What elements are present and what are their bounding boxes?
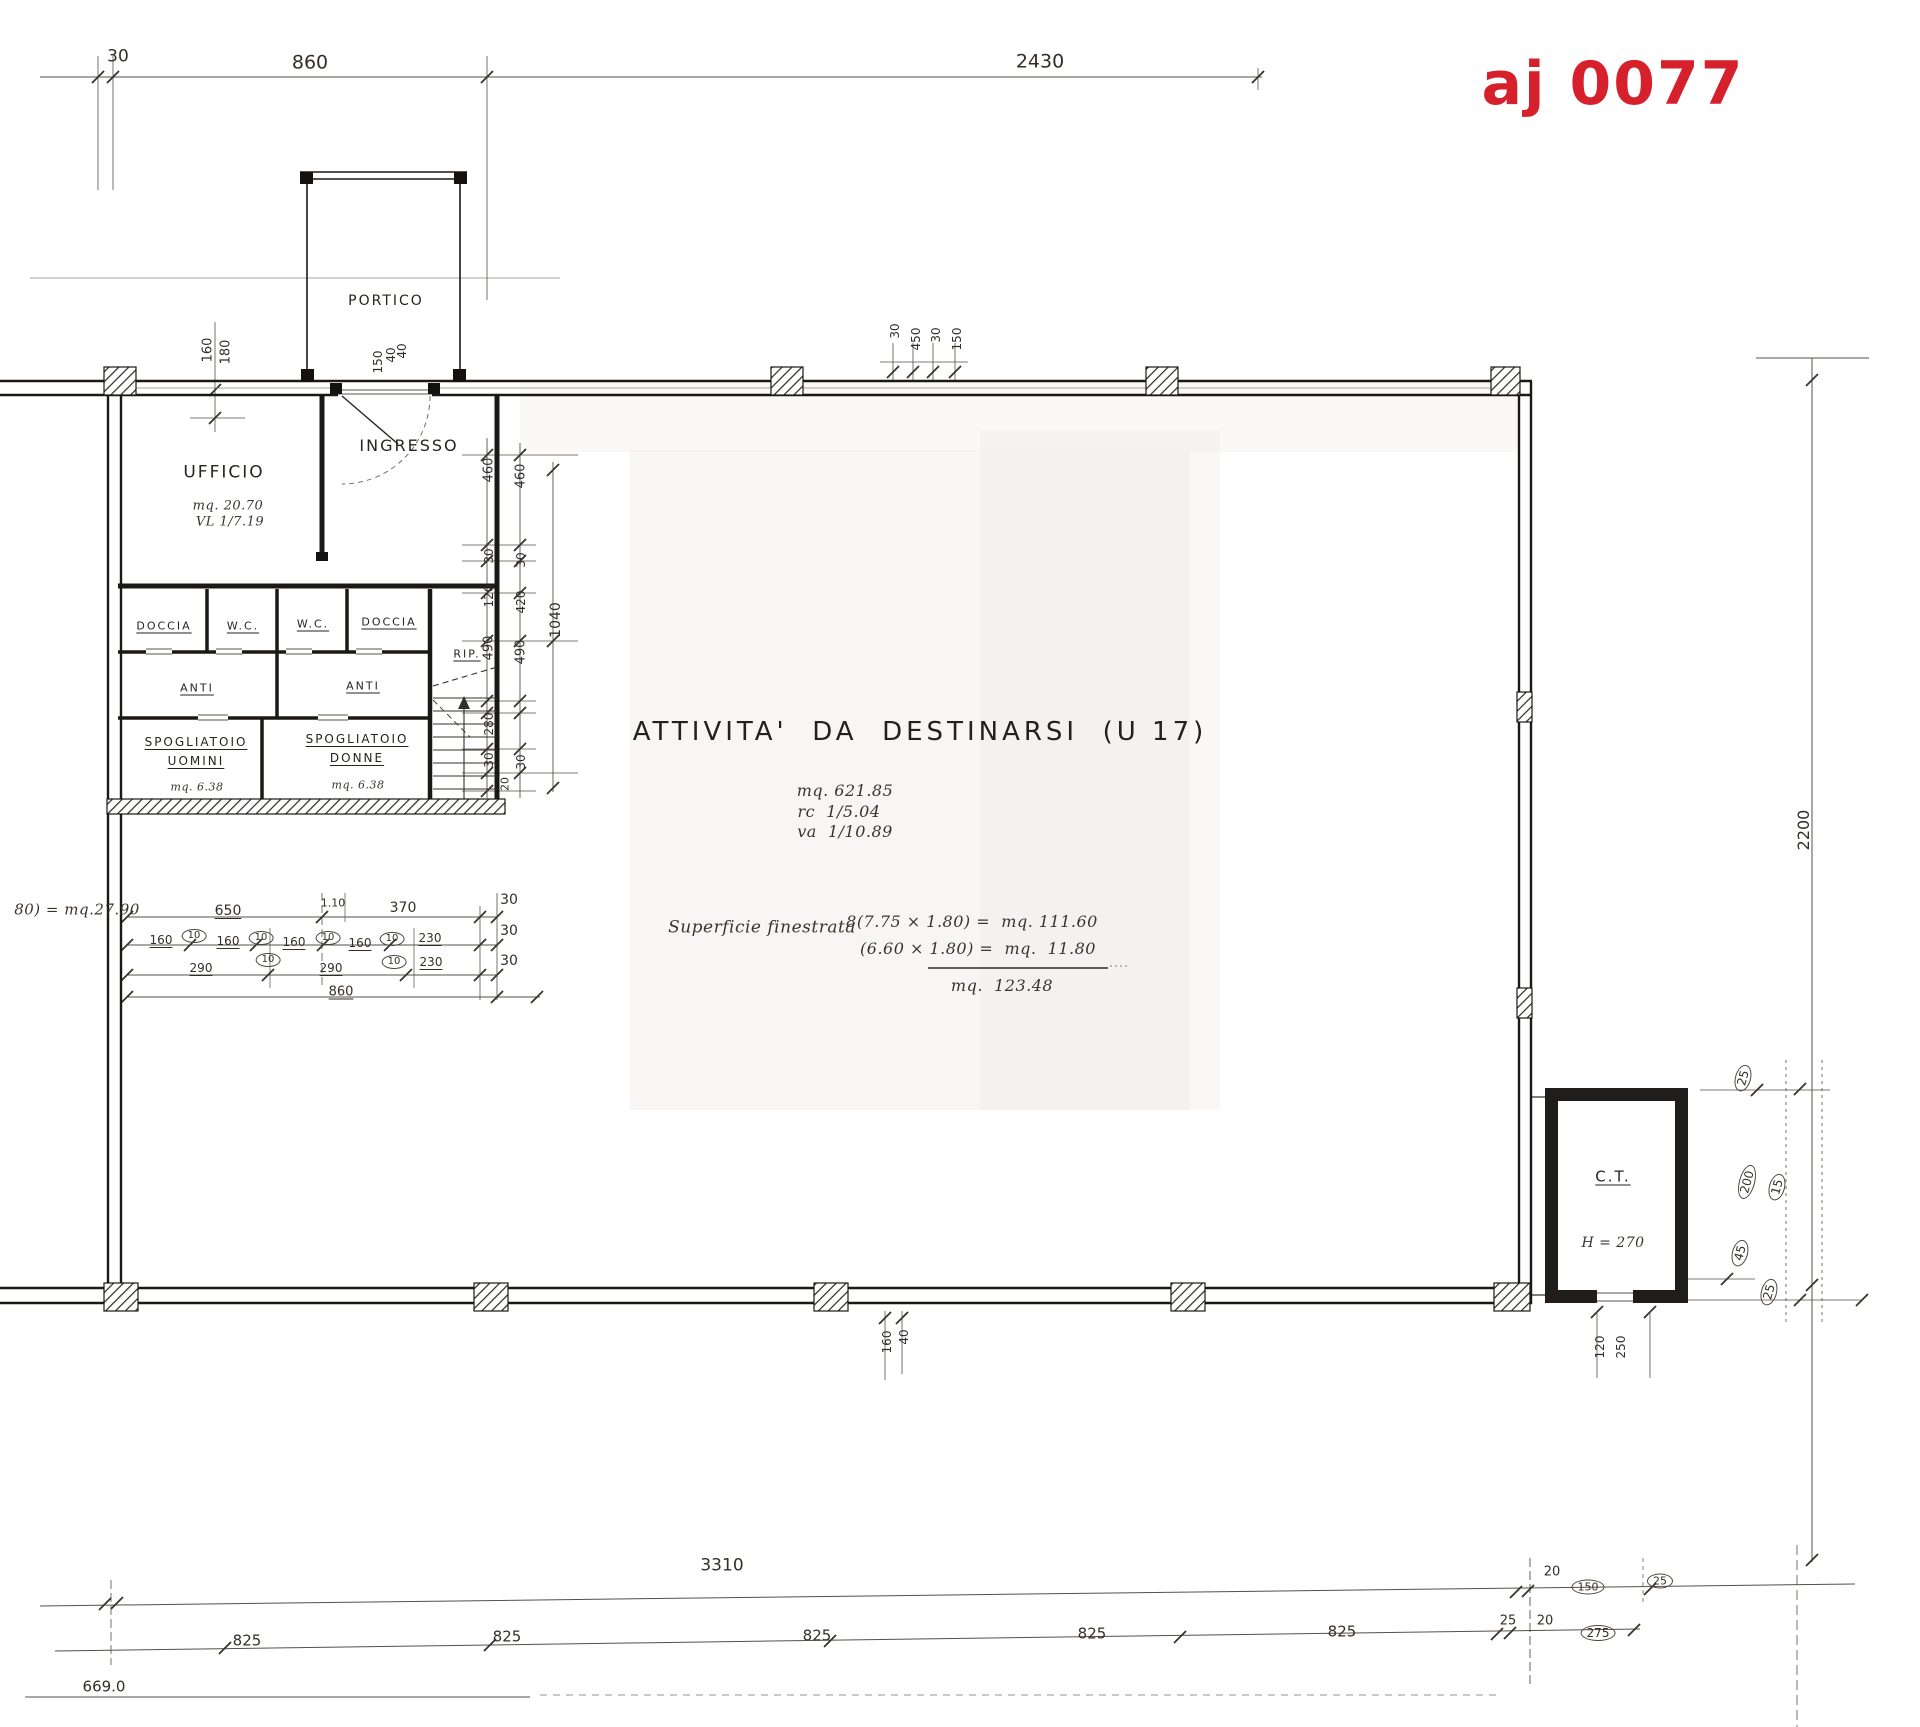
dim-20: 20 bbox=[1544, 1566, 1561, 1579]
dim-160: 160 bbox=[283, 936, 306, 948]
dim-160: 160 bbox=[881, 1331, 893, 1354]
dim-420: 420 bbox=[515, 591, 527, 614]
dim-650: 650 bbox=[215, 904, 242, 918]
dim-450: 450 bbox=[910, 328, 922, 351]
dim-860: 860 bbox=[329, 986, 354, 999]
room-ingresso: INGRESSO bbox=[359, 438, 458, 454]
dim-150: 150 bbox=[951, 328, 963, 351]
room-ufficio: UFFICIO bbox=[183, 465, 264, 482]
room-wc: W.C. bbox=[297, 619, 329, 630]
dim-160: 160 bbox=[202, 338, 215, 363]
dim-10: 10 bbox=[256, 953, 281, 967]
dim-40: 40 bbox=[396, 343, 408, 358]
room-spogliatoio-donne: SPOGLIATOIO bbox=[306, 733, 409, 745]
dim-top-860: 860 bbox=[292, 54, 328, 73]
dim-160: 160 bbox=[150, 934, 173, 946]
dim-250: 250 bbox=[1615, 1336, 1627, 1359]
dim-30: 30 bbox=[889, 323, 901, 338]
dim-top-30: 30 bbox=[107, 49, 129, 66]
dim-top-2430: 2430 bbox=[1016, 53, 1064, 72]
dim-230: 230 bbox=[420, 956, 443, 968]
dim-180: 180 bbox=[220, 340, 233, 365]
dim-30: 30 bbox=[515, 754, 527, 769]
dim-280: 280 bbox=[483, 713, 495, 736]
dim-20: 20 bbox=[500, 777, 511, 791]
dim-10: 10 bbox=[182, 929, 207, 943]
dim-490: 490 bbox=[483, 636, 496, 661]
room-anti: ANTI bbox=[346, 681, 380, 692]
mark-200: 200 bbox=[1735, 1163, 1759, 1201]
dim-30: 30 bbox=[483, 752, 495, 767]
dim-825: 825 bbox=[233, 1634, 262, 1649]
dim-30: 30 bbox=[483, 548, 495, 563]
window-calc-line2: (6.60 × 1.80) = mq. 11.80 bbox=[860, 941, 1096, 957]
room-anti: ANTI bbox=[180, 683, 214, 694]
dim-825: 825 bbox=[493, 1630, 522, 1645]
left-area-note: 80) = mq.27.90 bbox=[14, 903, 140, 918]
spogliatoio-uomini-area: mq. 6.38 bbox=[171, 782, 224, 793]
dim-10: 10 bbox=[382, 955, 407, 969]
ufficio-ratio: VL 1/7.19 bbox=[196, 516, 264, 529]
dim-460: 460 bbox=[483, 458, 496, 483]
mark-150: 150 bbox=[1572, 1580, 1605, 1595]
dim-30: 30 bbox=[515, 552, 527, 567]
window-calc-total: mq. 123.48 bbox=[951, 978, 1053, 994]
dim-30: 30 bbox=[500, 893, 518, 907]
activity-title: ATTIVITA' DA DESTINARSI (U 17) bbox=[633, 719, 1208, 745]
room-portico: PORTICO bbox=[348, 294, 424, 308]
floor-plan-sheet: 308602430PORTICO16018015040403045030150I… bbox=[0, 0, 1920, 1727]
dim-6690: 669.0 bbox=[83, 1680, 126, 1695]
dim-30: 30 bbox=[500, 924, 518, 938]
dim-bottom-3310: 3310 bbox=[700, 1558, 743, 1575]
dim-460: 460 bbox=[515, 464, 528, 489]
dim-370: 370 bbox=[390, 901, 417, 915]
room-rip: RIP. bbox=[453, 649, 480, 660]
dim-30: 30 bbox=[930, 327, 942, 342]
room-spogliatoio-uomini: UOMINI bbox=[168, 755, 225, 767]
activity-va: va 1/10.89 bbox=[797, 824, 893, 840]
dim-10: 10 bbox=[249, 931, 274, 945]
mark-25: 25 bbox=[1647, 1574, 1673, 1589]
dim-right-2200: 2200 bbox=[1796, 810, 1812, 851]
spogliatoio-donne-area: mq. 6.38 bbox=[332, 780, 385, 791]
dim-1040: 1040 bbox=[549, 602, 563, 638]
dim-290: 290 bbox=[190, 962, 213, 974]
ct-height: H = 270 bbox=[1581, 1236, 1644, 1250]
activity-rc: rc 1/5.04 bbox=[798, 804, 881, 820]
dim-110: 1.10 bbox=[321, 898, 346, 909]
dim-10: 10 bbox=[316, 931, 341, 945]
room-doccia: DOCCIA bbox=[136, 621, 191, 632]
dim-120: 120 bbox=[483, 585, 495, 608]
activity-area: mq. 621.85 bbox=[797, 783, 894, 799]
dim-30: 30 bbox=[500, 954, 518, 968]
dim-490: 490 bbox=[515, 640, 528, 665]
ufficio-area: mq. 20.70 bbox=[193, 500, 264, 513]
room-spogliatoio-uomini: SPOGLIATOIO bbox=[145, 736, 248, 748]
dim-825: 825 bbox=[1328, 1625, 1357, 1640]
window-calc-line1: 8(7.75 × 1.80) = mq. 111.60 bbox=[846, 914, 1098, 930]
dim-825: 825 bbox=[803, 1629, 832, 1644]
dim-160: 160 bbox=[349, 937, 372, 949]
dim-20: 20 bbox=[1537, 1615, 1554, 1628]
mark-25: 25 bbox=[1732, 1063, 1755, 1093]
room-wc: W.C. bbox=[227, 621, 259, 632]
labels-layer: 308602430PORTICO16018015040403045030150I… bbox=[0, 0, 1920, 1727]
mark-15: 15 bbox=[1766, 1172, 1789, 1202]
dim-825: 825 bbox=[1078, 1627, 1107, 1642]
dim-40: 40 bbox=[898, 1329, 910, 1344]
dim-290: 290 bbox=[320, 962, 343, 974]
dim-160: 160 bbox=[217, 935, 240, 947]
dim-25: 25 bbox=[1500, 1615, 1517, 1628]
dim-230: 230 bbox=[419, 932, 442, 944]
dim-10: 10 bbox=[380, 932, 405, 946]
mark-275: 275 bbox=[1581, 1625, 1616, 1641]
dim-150: 150 bbox=[372, 351, 384, 374]
room-ct: C.T. bbox=[1595, 1170, 1630, 1185]
mark-45: 45 bbox=[1729, 1238, 1752, 1268]
room-spogliatoio-donne: DONNE bbox=[330, 752, 384, 764]
window-calc-label: Superficie finestrata bbox=[668, 920, 856, 937]
approval-stamp: aj 0077 bbox=[1482, 49, 1745, 119]
dim-120: 120 bbox=[1594, 1336, 1606, 1359]
mark-25: 25 bbox=[1758, 1277, 1781, 1307]
room-doccia: DOCCIA bbox=[361, 617, 416, 628]
